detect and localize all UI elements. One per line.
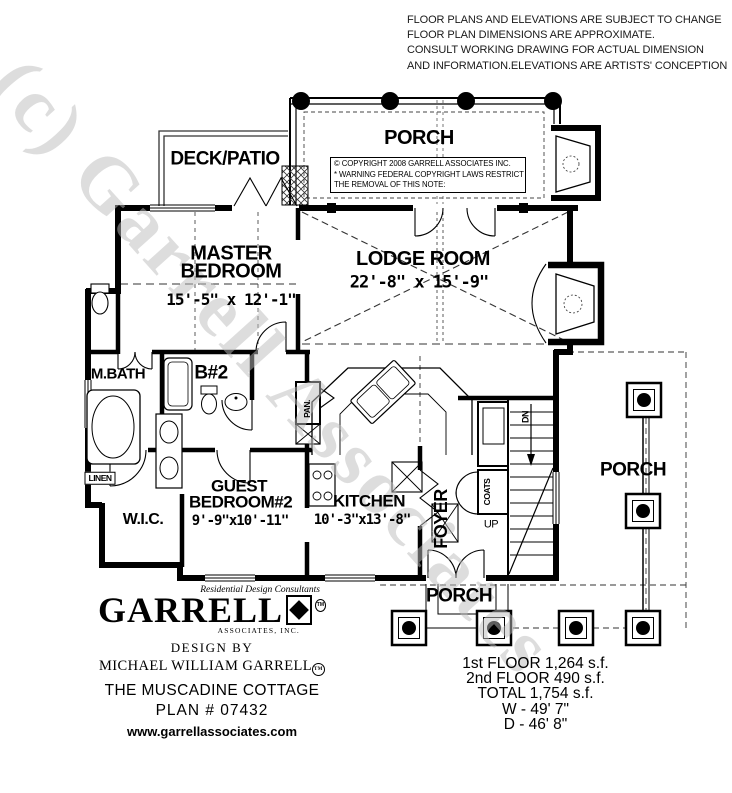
room-label-master-bedroom: MASTER BEDROOM bbox=[179, 245, 284, 282]
room-label-deck-patio: DECK/PATIO bbox=[170, 150, 279, 169]
room-dims-master-bedroom: 15'-5" x 12'-1" bbox=[166, 292, 296, 308]
copyright-line: © COPYRIGHT 2008 GARRELL ASSOCIATES INC. bbox=[334, 159, 522, 170]
disclaimer-line: CONSULT WORKING DRAWING FOR ACTUAL DIMEN… bbox=[407, 43, 727, 58]
stairs-up-label: UP bbox=[484, 520, 498, 531]
stairs-dn-label: DN bbox=[522, 411, 531, 423]
porch-columns-round bbox=[292, 92, 562, 110]
trademark-icon: TM bbox=[312, 663, 325, 676]
stairs bbox=[509, 404, 553, 574]
logo-brand-row: GARRELL TM bbox=[98, 592, 326, 628]
room-dims-guest-bedroom: 9'-9"x10'-11" bbox=[192, 514, 289, 528]
room-label-foyer: FOYER bbox=[432, 489, 450, 549]
room-dims-kitchen: 10'-3"x13'-8" bbox=[314, 513, 411, 527]
room-label-wic: W.I.C. bbox=[123, 512, 164, 528]
stats-block: 1st FLOOR 1,264 s.f. 2nd FLOOR 490 s.f. … bbox=[428, 656, 643, 732]
porch-fireplace-icon bbox=[551, 128, 598, 198]
stat-first-floor: 1st FLOOR 1,264 s.f. bbox=[428, 656, 643, 671]
plan-name: THE MUSCADINE COTTAGE bbox=[98, 682, 326, 700]
disclaimer-line: AND INFORMATION.ELEVATIONS ARE ARTISTS' … bbox=[407, 59, 727, 74]
room-label-m-bath: M.BATH bbox=[91, 367, 145, 382]
copyright-line: THE REMOVAL OF THIS NOTE: bbox=[334, 180, 522, 191]
trademark-icon: TM bbox=[315, 599, 326, 612]
room-label-pantry: PAN. bbox=[303, 400, 312, 418]
room-label-porch-right: PORCH bbox=[600, 461, 666, 480]
disclaimer: FLOOR PLANS AND ELEVATIONS ARE SUBJECT T… bbox=[407, 13, 727, 74]
room-label-guest-bedroom: GUEST BEDROOM#2 bbox=[189, 478, 289, 509]
disclaimer-line: FLOOR PLANS AND ELEVATIONS ARE SUBJECT T… bbox=[407, 13, 727, 28]
logo-designer: MICHAEL WILLIAM GARRELLTM bbox=[98, 658, 326, 676]
stat-width: W - 49' 7" bbox=[428, 702, 643, 717]
stat-total: TOTAL 1,754 s.f. bbox=[428, 686, 643, 701]
website-url: www.garrellassociates.com bbox=[98, 724, 326, 739]
bathroom-fixtures bbox=[87, 284, 247, 488]
blueprint-page: (c) Garrell Associates FLOOR PLANS AND E… bbox=[0, 0, 732, 793]
logo-design-by: DESIGN BY bbox=[98, 640, 326, 656]
stat-depth: D - 46' 8" bbox=[428, 717, 643, 732]
stat-second-floor: 2nd FLOOR 490 s.f. bbox=[428, 671, 643, 686]
diamond-icon bbox=[286, 595, 312, 625]
room-label-coats: COATS bbox=[483, 479, 492, 506]
disclaimer-line: FLOOR PLAN DIMENSIONS ARE APPROXIMATE. bbox=[407, 28, 727, 43]
room-dims-lodge-room: 22'-8" x 15'-9" bbox=[350, 275, 489, 292]
room-label-porch-top: PORCH bbox=[384, 128, 454, 148]
room-label-lodge-room: LODGE ROOM bbox=[356, 249, 490, 269]
logo-block: Residential Design Consultants GARRELL T… bbox=[98, 585, 326, 739]
lodge-fireplace-icon bbox=[532, 264, 601, 343]
room-label-bath2: B#2 bbox=[194, 364, 227, 383]
brand-name: GARRELL bbox=[98, 592, 283, 628]
copyright-line: * WARNING FEDERAL COPYRIGHT LAWS RESTRIC… bbox=[334, 170, 522, 181]
room-label-porch-bottom: PORCH bbox=[426, 587, 492, 606]
room-label-linen: LINEN bbox=[85, 472, 116, 485]
copyright-notice-box: © COPYRIGHT 2008 GARRELL ASSOCIATES INC.… bbox=[330, 157, 526, 193]
room-label-kitchen: KITCHEN bbox=[333, 493, 405, 510]
plan-number: PLAN # 07432 bbox=[98, 702, 326, 720]
